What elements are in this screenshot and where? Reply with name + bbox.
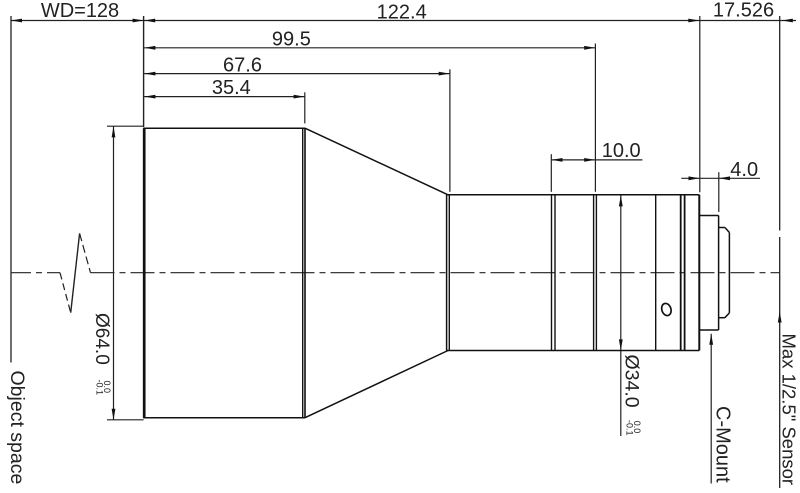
svg-text:17.526: 17.526 (713, 0, 774, 22)
svg-text:C-Mount: C-Mount (712, 406, 734, 483)
svg-text:122.4: 122.4 (377, 2, 427, 24)
svg-text:Object space: Object space (6, 371, 28, 485)
svg-text:-0.1: -0.1 (94, 380, 104, 396)
svg-text:35.4: 35.4 (212, 77, 251, 99)
svg-text:Ø34.0: Ø34.0 (621, 355, 643, 408)
svg-text:10.0: 10.0 (602, 140, 641, 162)
svg-text:Ø64.0: Ø64.0 (91, 313, 112, 365)
svg-text:99.5: 99.5 (272, 29, 311, 51)
svg-text:-0.1: -0.1 (625, 420, 635, 436)
svg-text:67.6: 67.6 (223, 54, 262, 76)
svg-text:Max 1/2.5" Sensor: Max 1/2.5" Sensor (778, 334, 799, 486)
svg-text:4.0: 4.0 (730, 159, 758, 181)
svg-text:WD=128: WD=128 (41, 0, 119, 22)
